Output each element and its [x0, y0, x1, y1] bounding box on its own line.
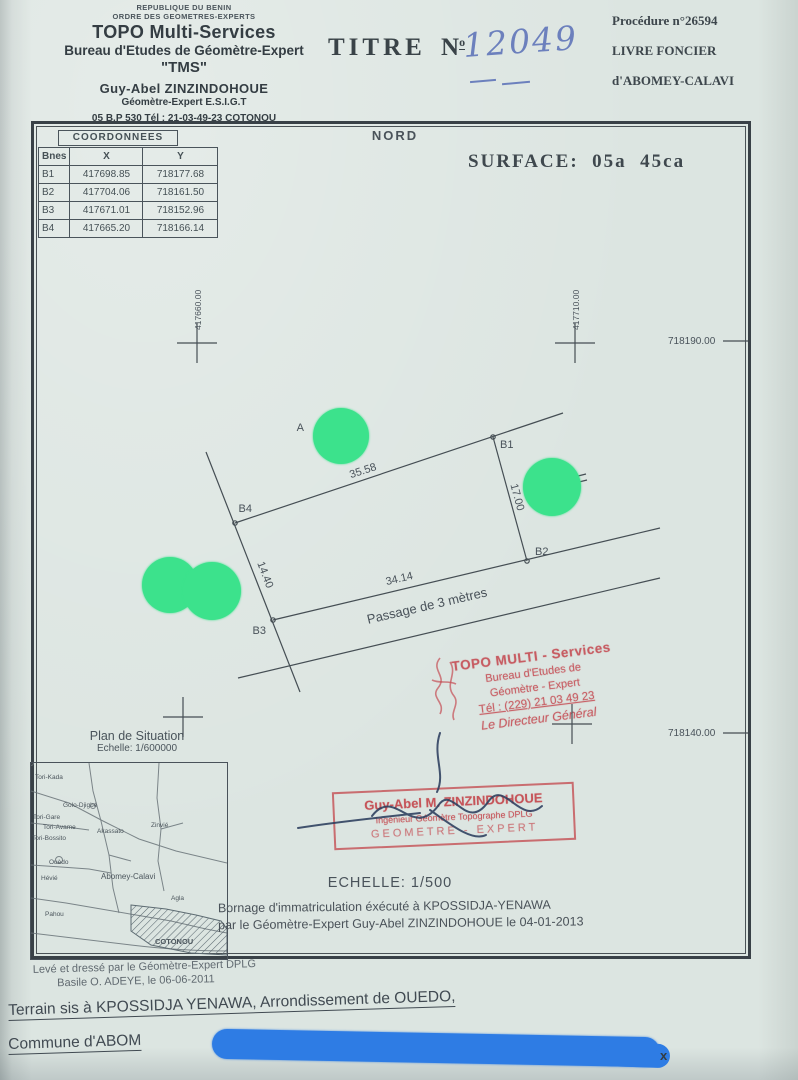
expert-name: Guy-Abel ZINZINDOHOUE — [34, 82, 334, 97]
table-row: B1 417698.85 718177.68 — [39, 166, 218, 184]
terrain-location-line: Terrain sis à KPOSSIDJA YENAWA, Arrondis… — [8, 988, 456, 1020]
north-label: NORD — [350, 128, 440, 143]
green-redaction-dot — [183, 562, 241, 620]
col-x: X — [70, 148, 143, 166]
bornage-note: Bornage d'immatriculation éxécuté à KPOS… — [218, 896, 648, 935]
table-row: B2 417704.06 718161.50 — [39, 184, 218, 202]
borne-x: 417665.20 — [70, 220, 143, 238]
borne-id: B2 — [39, 184, 70, 202]
map-label: Agla — [171, 895, 184, 902]
borne-y: 718161.50 — [143, 184, 218, 202]
situation-map: Tori-Kada Golo-Djigbé Tori-Gare Tori-Ava… — [30, 762, 228, 960]
situation-caption: Plan de Situation Echelle: 1/600000 — [62, 729, 212, 754]
green-redaction-dot — [313, 408, 369, 464]
expert-title: Géomètre-Expert E.S.I.G.T — [34, 97, 334, 109]
borne-x: 417698.85 — [70, 166, 143, 184]
surface-label: SURFACE: 05a 45ca — [468, 151, 685, 173]
borne-id: B4 — [39, 220, 70, 238]
map-label: Tori-Bossito — [32, 835, 66, 842]
registry-block: Procédure n°26594 LIVRE FONCIER d'ABOMEY… — [612, 14, 792, 104]
situation-scale: Echelle: 1/600000 — [62, 743, 212, 754]
coordinates-table: Bnes X Y B1 417698.85 718177.68 B2 41770… — [38, 147, 218, 238]
borne-x: 417704.06 — [70, 184, 143, 202]
borne-id: B1 — [39, 166, 70, 184]
borne-x: 417671.01 — [70, 202, 143, 220]
letterhead: REPUBLIQUE DU BENIN ORDRE DES GEOMETRES-… — [34, 4, 334, 127]
borne-y: 718177.68 — [143, 166, 218, 184]
expert-stamp: Guy-Abel M. ZINZINDOHOUE Ingénieur Géomè… — [332, 782, 576, 851]
plan-scale-label: ECHELLE: 1/500 — [300, 875, 480, 891]
livre-foncier: LIVRE FONCIER — [612, 44, 792, 57]
borne-y: 718166.14 — [143, 220, 218, 238]
situation-title: Plan de Situation — [62, 729, 212, 743]
borne-y: 718152.96 — [143, 202, 218, 220]
col-bornes: Bnes — [39, 148, 70, 166]
titre-number-label: No — [441, 34, 465, 62]
map-label: Tori-Gare — [33, 814, 60, 821]
table-row: B4 417665.20 718166.14 — [39, 220, 218, 238]
map-label: COTONOU — [155, 937, 193, 946]
map-label: Zinvié — [151, 822, 169, 829]
map-label: Pahou — [45, 911, 64, 918]
map-label: Abomey-Calavi — [101, 872, 155, 881]
lake-area — [131, 905, 227, 955]
map-label: Tori-Avame — [43, 824, 76, 831]
titre-label: TITRE — [328, 34, 426, 62]
handwriting-underline — [470, 79, 496, 83]
situation-map-drawing: Tori-Kada Golo-Djigbé Tori-Gare Tori-Ava… — [31, 763, 227, 959]
procedure-number: Procédure n°26594 — [612, 14, 792, 27]
map-label: Hévié — [41, 875, 58, 882]
map-label: Golo-Djigbé — [63, 802, 98, 809]
address-line: 05 B.P 530 Tél : 21-03-49-23 COTONOU — [92, 113, 276, 127]
coordinates-header-row: Bnes X Y — [39, 148, 218, 166]
map-label: Akassato — [97, 828, 124, 835]
handwriting-underline — [502, 81, 530, 85]
blue-redaction-bar — [212, 1029, 660, 1068]
table-row: B3 417671.01 718152.96 — [39, 202, 218, 220]
surveyor-note: Levé et dressé par le Géomètre-Expert DP… — [33, 957, 257, 991]
company-sigle: "TMS" — [34, 59, 334, 76]
col-y: Y — [143, 148, 218, 166]
order-line: ORDRE DES GEOMETRES-EXPERTS — [34, 13, 334, 22]
redaction-x-mark: x — [660, 1048, 667, 1063]
bureau-line: Bureau d'Etudes de Géomètre-Expert — [34, 43, 334, 59]
handwritten-titre-number: 12049 — [462, 18, 579, 65]
commune-line: Commune d'ABOM — [8, 1032, 142, 1054]
green-redaction-dot — [523, 458, 581, 516]
map-label: Ouèdo — [49, 859, 69, 866]
borne-id: B3 — [39, 202, 70, 220]
coordinates-table-title: COORDONNEES — [58, 130, 178, 146]
scanned-land-title-document: REPUBLIQUE DU BENIN ORDRE DES GEOMETRES-… — [0, 0, 798, 1080]
livre-location: d'ABOMEY-CALAVI — [612, 74, 792, 87]
company-name: TOPO Multi-Services — [34, 22, 334, 43]
map-label: Tori-Kada — [35, 774, 63, 781]
